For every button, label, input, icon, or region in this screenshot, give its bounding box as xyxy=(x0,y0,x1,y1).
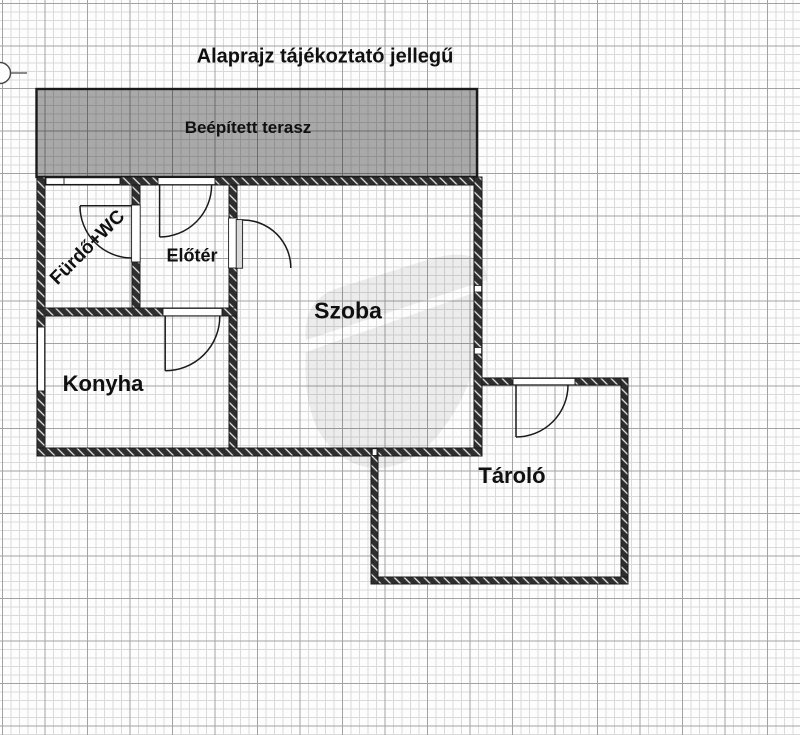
window-terrace-bath xyxy=(46,178,120,185)
opening-bath xyxy=(132,205,141,262)
room-label-room: Szoba xyxy=(314,298,382,325)
room-label-storage: Tároló xyxy=(478,463,545,489)
windows xyxy=(38,178,120,391)
wall-storage-left xyxy=(371,448,378,584)
opening-storage xyxy=(513,378,575,384)
wall-storage-right xyxy=(621,378,628,584)
door-kitchen-arc xyxy=(165,316,220,371)
watermark-logo xyxy=(305,255,487,468)
wall-main-bottom xyxy=(37,448,482,456)
room-label-terrace: Beépített terasz xyxy=(185,118,312,138)
door-storage-arc xyxy=(516,385,568,437)
wall-storage-bottom xyxy=(371,577,628,584)
door-hall-arc xyxy=(160,185,212,237)
opening-kitchen xyxy=(163,308,222,315)
door-room-arc xyxy=(243,220,291,268)
window-kitchen-left xyxy=(38,327,45,391)
notch-room-right-2 xyxy=(474,348,481,355)
wall-main-right xyxy=(474,177,482,456)
plan-title: Alaprajz tájékoztató jellegű xyxy=(197,46,454,69)
notch-room-right-1 xyxy=(474,286,481,293)
door-room-leaf xyxy=(236,220,242,269)
room-label-kitchen: Konyha xyxy=(63,371,144,397)
floorplan-drawing xyxy=(0,0,800,735)
notch-storage-left xyxy=(372,449,377,456)
room-label-hall: Előtér xyxy=(166,246,217,267)
section-marker-icon xyxy=(0,63,27,84)
floorplan-canvas: Alaprajz tájékoztató jellegű Beépített t… xyxy=(0,0,800,735)
opening-terrace-hall xyxy=(158,178,215,185)
